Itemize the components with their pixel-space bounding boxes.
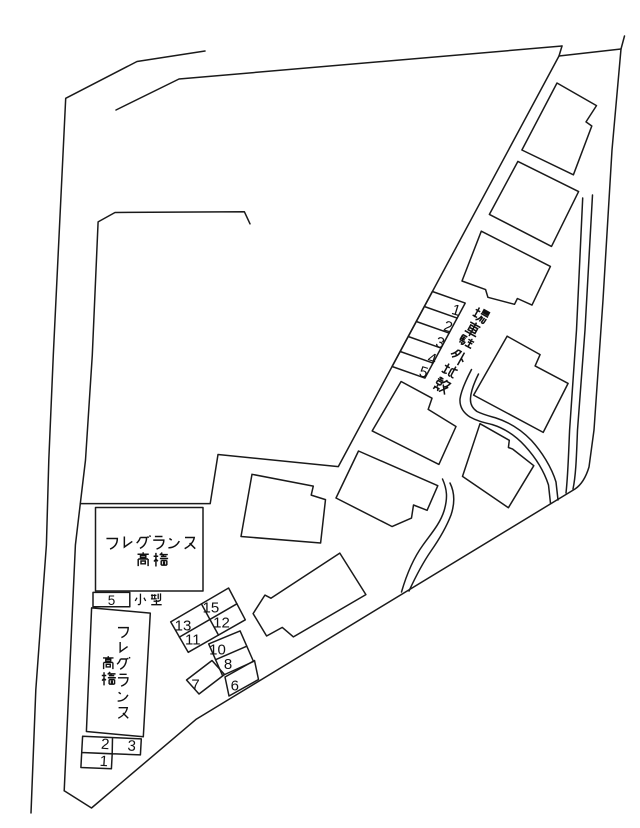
svg-text:6: 6 — [231, 678, 239, 695]
svg-text:7: 7 — [191, 677, 199, 694]
svg-text:1: 1 — [99, 753, 109, 771]
svg-text:2: 2 — [100, 736, 110, 754]
svg-text:12: 12 — [213, 615, 230, 632]
svg-text:5: 5 — [108, 593, 116, 608]
svg-text:8: 8 — [224, 656, 232, 673]
svg-text:3: 3 — [127, 737, 137, 755]
svg-text:11: 11 — [185, 632, 201, 649]
